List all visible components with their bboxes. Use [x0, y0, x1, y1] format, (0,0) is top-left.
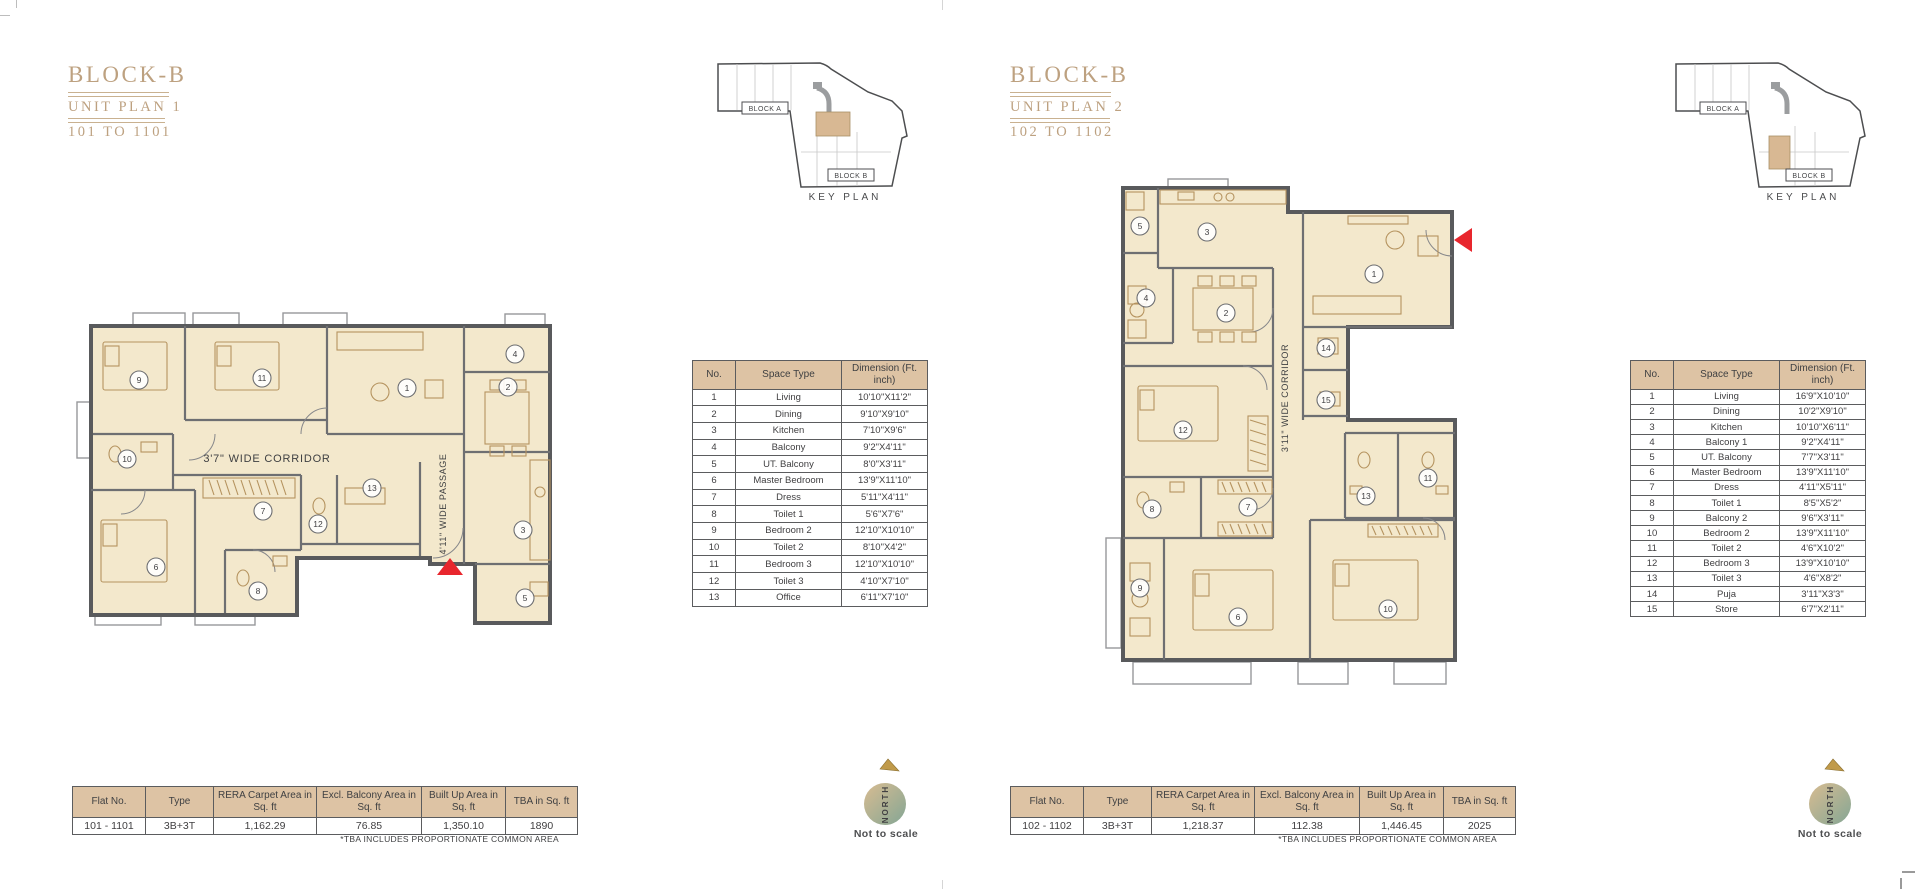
crop-mark: [0, 15, 10, 16]
room-number: 12: [1178, 425, 1188, 435]
column-header: Dimension (Ft. inch): [1780, 361, 1866, 390]
tba-footnote: *TBA INCLUDES PROPORTIONATE COMMON AREA: [1010, 834, 1497, 844]
room-number: 9: [137, 375, 142, 385]
north-label: NORTH: [1826, 785, 1835, 823]
column-header: Flat No.: [73, 787, 146, 818]
dimension-row: 6Master Bedroom13'9"X11'10": [1631, 465, 1866, 480]
dimension-row: 7Dress4'11"X5'11": [1631, 480, 1866, 495]
crop-mark: [942, 880, 943, 889]
dimension-row: 11Bedroom 312'10"X10'10": [693, 556, 928, 573]
north-arrow-icon: [1825, 759, 1844, 771]
north-arrow-icon: [880, 759, 899, 771]
room-number: 13: [1361, 491, 1371, 501]
column-header: TBA in Sq. ft: [1444, 787, 1516, 818]
crop-mark: [1902, 871, 1915, 873]
dimension-row: 3Kitchen10'10"X6'11": [1631, 419, 1866, 434]
dimension-row: 4Balcony 19'2"X4'11": [1631, 435, 1866, 450]
highlighted-unit: [1769, 136, 1790, 169]
column-header: No.: [1631, 361, 1674, 390]
key-plan-core: [1771, 82, 1780, 89]
block-b-label: BLOCK B: [834, 173, 867, 180]
room-number: 10: [1383, 604, 1393, 614]
north-label: NORTH: [881, 785, 890, 823]
crop-mark: [942, 0, 943, 10]
floor-plan-unit-1: 3'7" WIDE CORRIDOR 4'11" WIDE PASSAGE 12…: [75, 292, 575, 642]
dimension-row: 8Toilet 15'6"X7'6": [693, 506, 928, 523]
room-number: 13: [367, 483, 377, 493]
summary-row: 102 - 11023B+3T1,218.37112.381,446.45202…: [1011, 818, 1516, 835]
north-compass: NORTH: [1803, 756, 1857, 832]
dimension-row: 13Office6'11"X7'10": [693, 589, 928, 606]
room-number: 15: [1321, 395, 1331, 405]
unit-outline: [91, 326, 550, 623]
column-header: Built Up Area in Sq. ft: [422, 787, 506, 818]
block-b-label: BLOCK B: [1792, 173, 1825, 180]
column-header: Flat No.: [1011, 787, 1084, 818]
title-rule: [68, 118, 165, 123]
dimension-row: 11Toilet 24'6"X10'2": [1631, 541, 1866, 556]
dimension-row: 2Dining10'2"X9'10": [1631, 404, 1866, 419]
key-plan-caption: KEY PLAN: [1767, 192, 1840, 203]
column-header: Space Type: [1674, 361, 1780, 390]
room-number: 11: [1424, 473, 1433, 483]
dimension-row: 8Toilet 18'5"X5'2": [1631, 495, 1866, 510]
room-number: 4: [513, 349, 518, 359]
room-number: 2: [1224, 308, 1229, 318]
dimension-row: 13Toilet 34'6"X8'2": [1631, 571, 1866, 586]
column-header: TBA in Sq. ft: [506, 787, 578, 818]
room-number: 10: [122, 454, 132, 464]
room-number: 6: [154, 562, 159, 572]
block-title: BLOCK-B: [1010, 62, 1128, 88]
tba-footnote: *TBA INCLUDES PROPORTIONATE COMMON AREA: [72, 834, 559, 844]
dimension-table-unit-1: No.Space TypeDimension (Ft. inch)1Living…: [692, 360, 928, 607]
dimension-row: 5UT. Balcony7'7"X3'11": [1631, 450, 1866, 465]
key-plan: BLOCK A BLOCK B KEY PLAN: [1663, 48, 1868, 206]
column-header: RERA Carpet Area in Sq. ft: [214, 787, 317, 818]
summary-table-unit-2: Flat No.TypeRERA Carpet Area in Sq. ftEx…: [1010, 786, 1516, 835]
room-number: 11: [258, 373, 267, 383]
room-number: 4: [1144, 293, 1149, 303]
room-number: 1: [1372, 269, 1377, 279]
column-header: Type: [146, 787, 214, 818]
dimension-row: 1Living10'10"X11'2": [693, 389, 928, 406]
column-header: Excl. Balcony Area in Sq. ft: [317, 787, 422, 818]
room-number: 5: [1138, 221, 1143, 231]
room-number: 7: [261, 506, 266, 516]
room-number: 14: [1321, 343, 1331, 353]
unit-range: 102 TO 1102: [1010, 124, 1114, 141]
block-a-label: BLOCK A: [749, 106, 782, 113]
crop-mark: [1900, 878, 1902, 889]
title-rule: [1010, 118, 1110, 123]
plan-subtitle: UNIT PLAN 2: [1010, 99, 1124, 116]
dimension-row: 6Master Bedroom13'9"X11'10": [693, 473, 928, 490]
dimension-row: 12Toilet 34'10"X7'10": [693, 573, 928, 590]
corridor-label: 3'7" WIDE CORRIDOR: [203, 453, 330, 465]
block-a-label: BLOCK A: [1707, 106, 1740, 113]
dimension-row: 3Kitchen7'10"X9'6": [693, 422, 928, 439]
dimension-table-unit-2: No.Space TypeDimension (Ft. inch)1Living…: [1630, 360, 1866, 617]
plan-subtitle: UNIT PLAN 1: [68, 99, 182, 116]
room-number: 7: [1246, 502, 1251, 512]
dimension-row: 12Bedroom 313'9"X10'10": [1631, 556, 1866, 571]
not-to-scale-note: Not to scale: [1787, 828, 1873, 840]
summary-row: 101 - 11013B+3T1,162.2976.851,350.101890: [73, 818, 578, 835]
highlighted-unit: [816, 112, 850, 136]
key-plan: BLOCK A BLOCK B KEY PLAN: [705, 48, 910, 206]
dimension-row: 9Bedroom 212'10"X10'10": [693, 523, 928, 540]
column-header: Space Type: [736, 361, 842, 390]
room-number: 8: [256, 586, 261, 596]
room-number: 12: [313, 519, 323, 529]
key-plan-caption: KEY PLAN: [809, 192, 882, 203]
column-header: Dimension (Ft. inch): [842, 361, 928, 390]
summary-table-unit-1: Flat No.TypeRERA Carpet Area in Sq. ftEx…: [72, 786, 578, 835]
dimension-row: 10Toilet 28'10"X4'2": [693, 539, 928, 556]
title-rule: [68, 92, 169, 97]
room-number: 9: [1138, 583, 1143, 593]
not-to-scale-note: Not to scale: [843, 828, 929, 840]
dimension-row: 14Puja3'11"X3'3": [1631, 587, 1866, 602]
north-compass: NORTH: [858, 756, 912, 832]
column-header: RERA Carpet Area in Sq. ft: [1152, 787, 1255, 818]
passage-label: 4'11" WIDE PASSAGE: [438, 454, 448, 555]
dimension-row: 1Living16'9"X10'10": [1631, 389, 1866, 404]
room-number: 2: [506, 382, 511, 392]
dimension-row: 2Dining9'10"X9'10": [693, 406, 928, 423]
brochure-sheet: BLOCK-B UNIT PLAN 1 101 TO 1101 BLOCK A …: [0, 0, 1920, 889]
column-header: Built Up Area in Sq. ft: [1360, 787, 1444, 818]
column-header: No.: [693, 361, 736, 390]
room-number: 5: [523, 593, 528, 603]
unit-range: 101 TO 1101: [68, 124, 172, 141]
title-rule: [1010, 92, 1111, 97]
dimension-row: 5UT. Balcony8'0"X3'11": [693, 456, 928, 473]
dimension-row: 4Balcony9'2"X4'11": [693, 439, 928, 456]
room-number: 3: [521, 525, 526, 535]
room-number: 8: [1150, 504, 1155, 514]
floor-plan-unit-2: 3'11" WIDE CORRIDOR 12345678910111213141…: [1098, 178, 1498, 690]
block-title: BLOCK-B: [68, 62, 186, 88]
dimension-row: 9Balcony 29'6"X3'11": [1631, 511, 1866, 526]
key-plan-outline: [718, 63, 907, 187]
dimension-row: 15Store6'7"X2'11": [1631, 602, 1866, 617]
room-number: 1: [405, 383, 410, 393]
corridor-label: 3'11" WIDE CORRIDOR: [1280, 344, 1290, 452]
column-header: Excl. Balcony Area in Sq. ft: [1255, 787, 1360, 818]
entry-arrow: [1454, 228, 1472, 252]
dimension-row: 10Bedroom 213'9"X11'10": [1631, 526, 1866, 541]
key-plan-core: [813, 82, 822, 89]
room-number: 3: [1205, 227, 1210, 237]
room-number: 6: [1236, 612, 1241, 622]
column-header: Type: [1084, 787, 1152, 818]
crop-mark: [16, 0, 17, 8]
dimension-row: 7Dress5'11"X4'11": [693, 489, 928, 506]
